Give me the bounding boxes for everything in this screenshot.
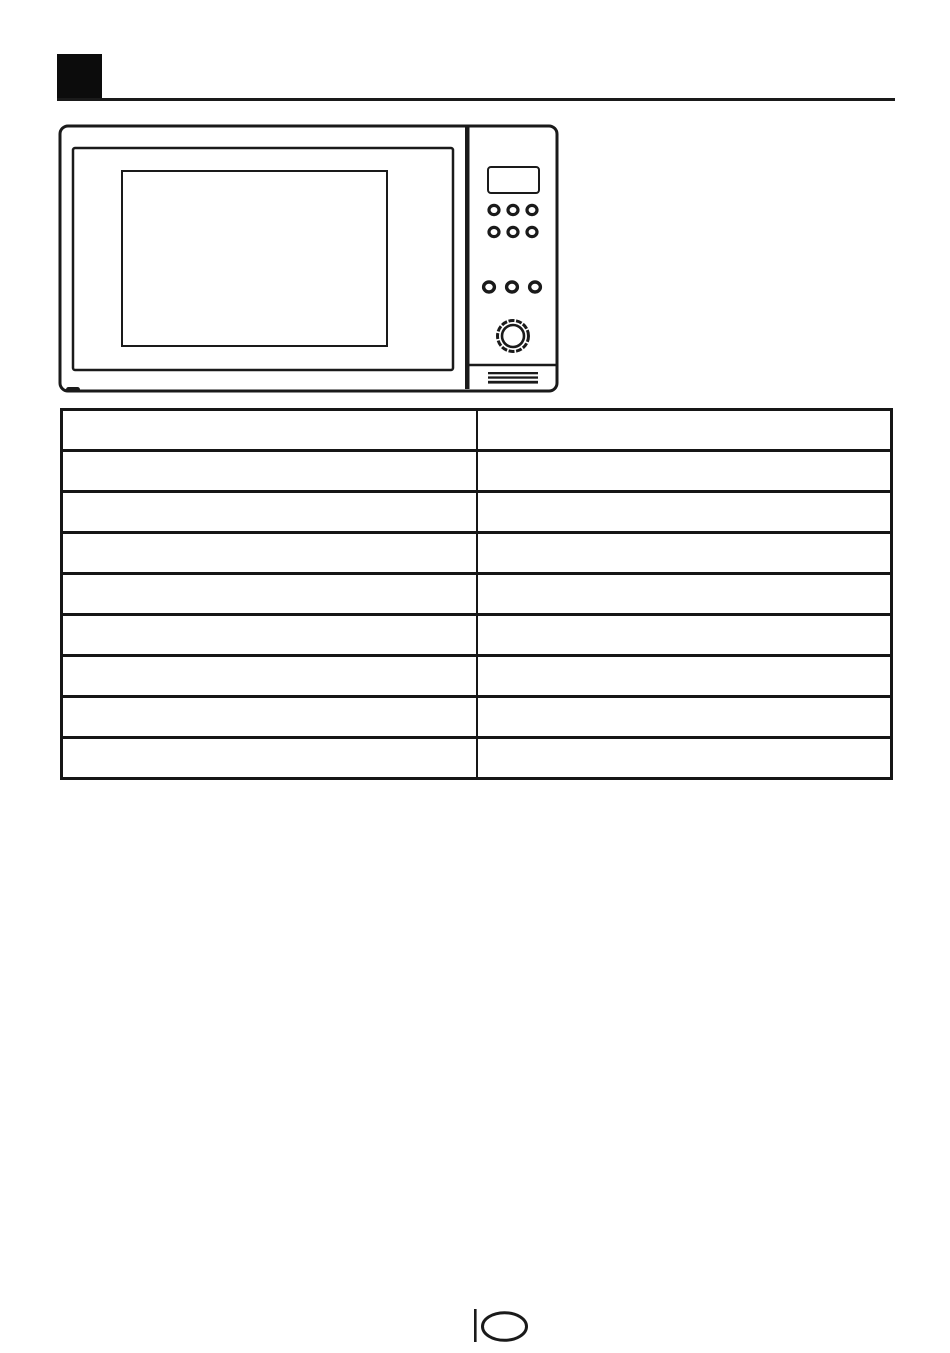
- button-row-2: [489, 227, 537, 236]
- table-cell: [477, 410, 892, 451]
- page-number-glyphs-icon: [468, 1303, 532, 1347]
- spec-table: [60, 408, 893, 780]
- display: [488, 167, 539, 193]
- table-cell: [477, 533, 892, 574]
- button-row-1: [489, 205, 537, 214]
- table-row: [62, 656, 892, 697]
- table-row: [62, 697, 892, 738]
- table-row: [62, 574, 892, 615]
- rotary-knob: [498, 321, 529, 352]
- section-marker-square-icon: [57, 54, 102, 101]
- table-cell: [62, 533, 477, 574]
- table-cell: [477, 738, 892, 779]
- oven-body: [60, 126, 557, 391]
- table-cell: [477, 492, 892, 533]
- table-cell: [477, 574, 892, 615]
- table-cell: [62, 615, 477, 656]
- spec-table-body: [62, 410, 892, 779]
- table-cell: [62, 697, 477, 738]
- table-cell: [477, 615, 892, 656]
- door-window: [122, 171, 387, 346]
- button-row-3: [484, 282, 541, 292]
- table-cell: [477, 656, 892, 697]
- table-cell: [62, 574, 477, 615]
- table-cell: [477, 697, 892, 738]
- vent-grille-icon: [488, 372, 538, 384]
- table-row: [62, 738, 892, 779]
- table-row: [62, 533, 892, 574]
- table-cell: [62, 410, 477, 451]
- table-row: [62, 615, 892, 656]
- door-frame: [73, 148, 453, 370]
- table-cell: [62, 656, 477, 697]
- table-row: [62, 451, 892, 492]
- table-row: [62, 410, 892, 451]
- manual-page: 10: [0, 0, 950, 1353]
- table-cell: [62, 492, 477, 533]
- table-cell: [62, 451, 477, 492]
- page-number: 10: [468, 1303, 532, 1347]
- header-rule: [57, 98, 895, 101]
- table-cell: [477, 451, 892, 492]
- table-row: [62, 492, 892, 533]
- table-cell: [62, 738, 477, 779]
- control-panel-divider: [465, 127, 470, 389]
- microwave-figure: [58, 122, 560, 398]
- microwave-oven-icon: [58, 122, 560, 398]
